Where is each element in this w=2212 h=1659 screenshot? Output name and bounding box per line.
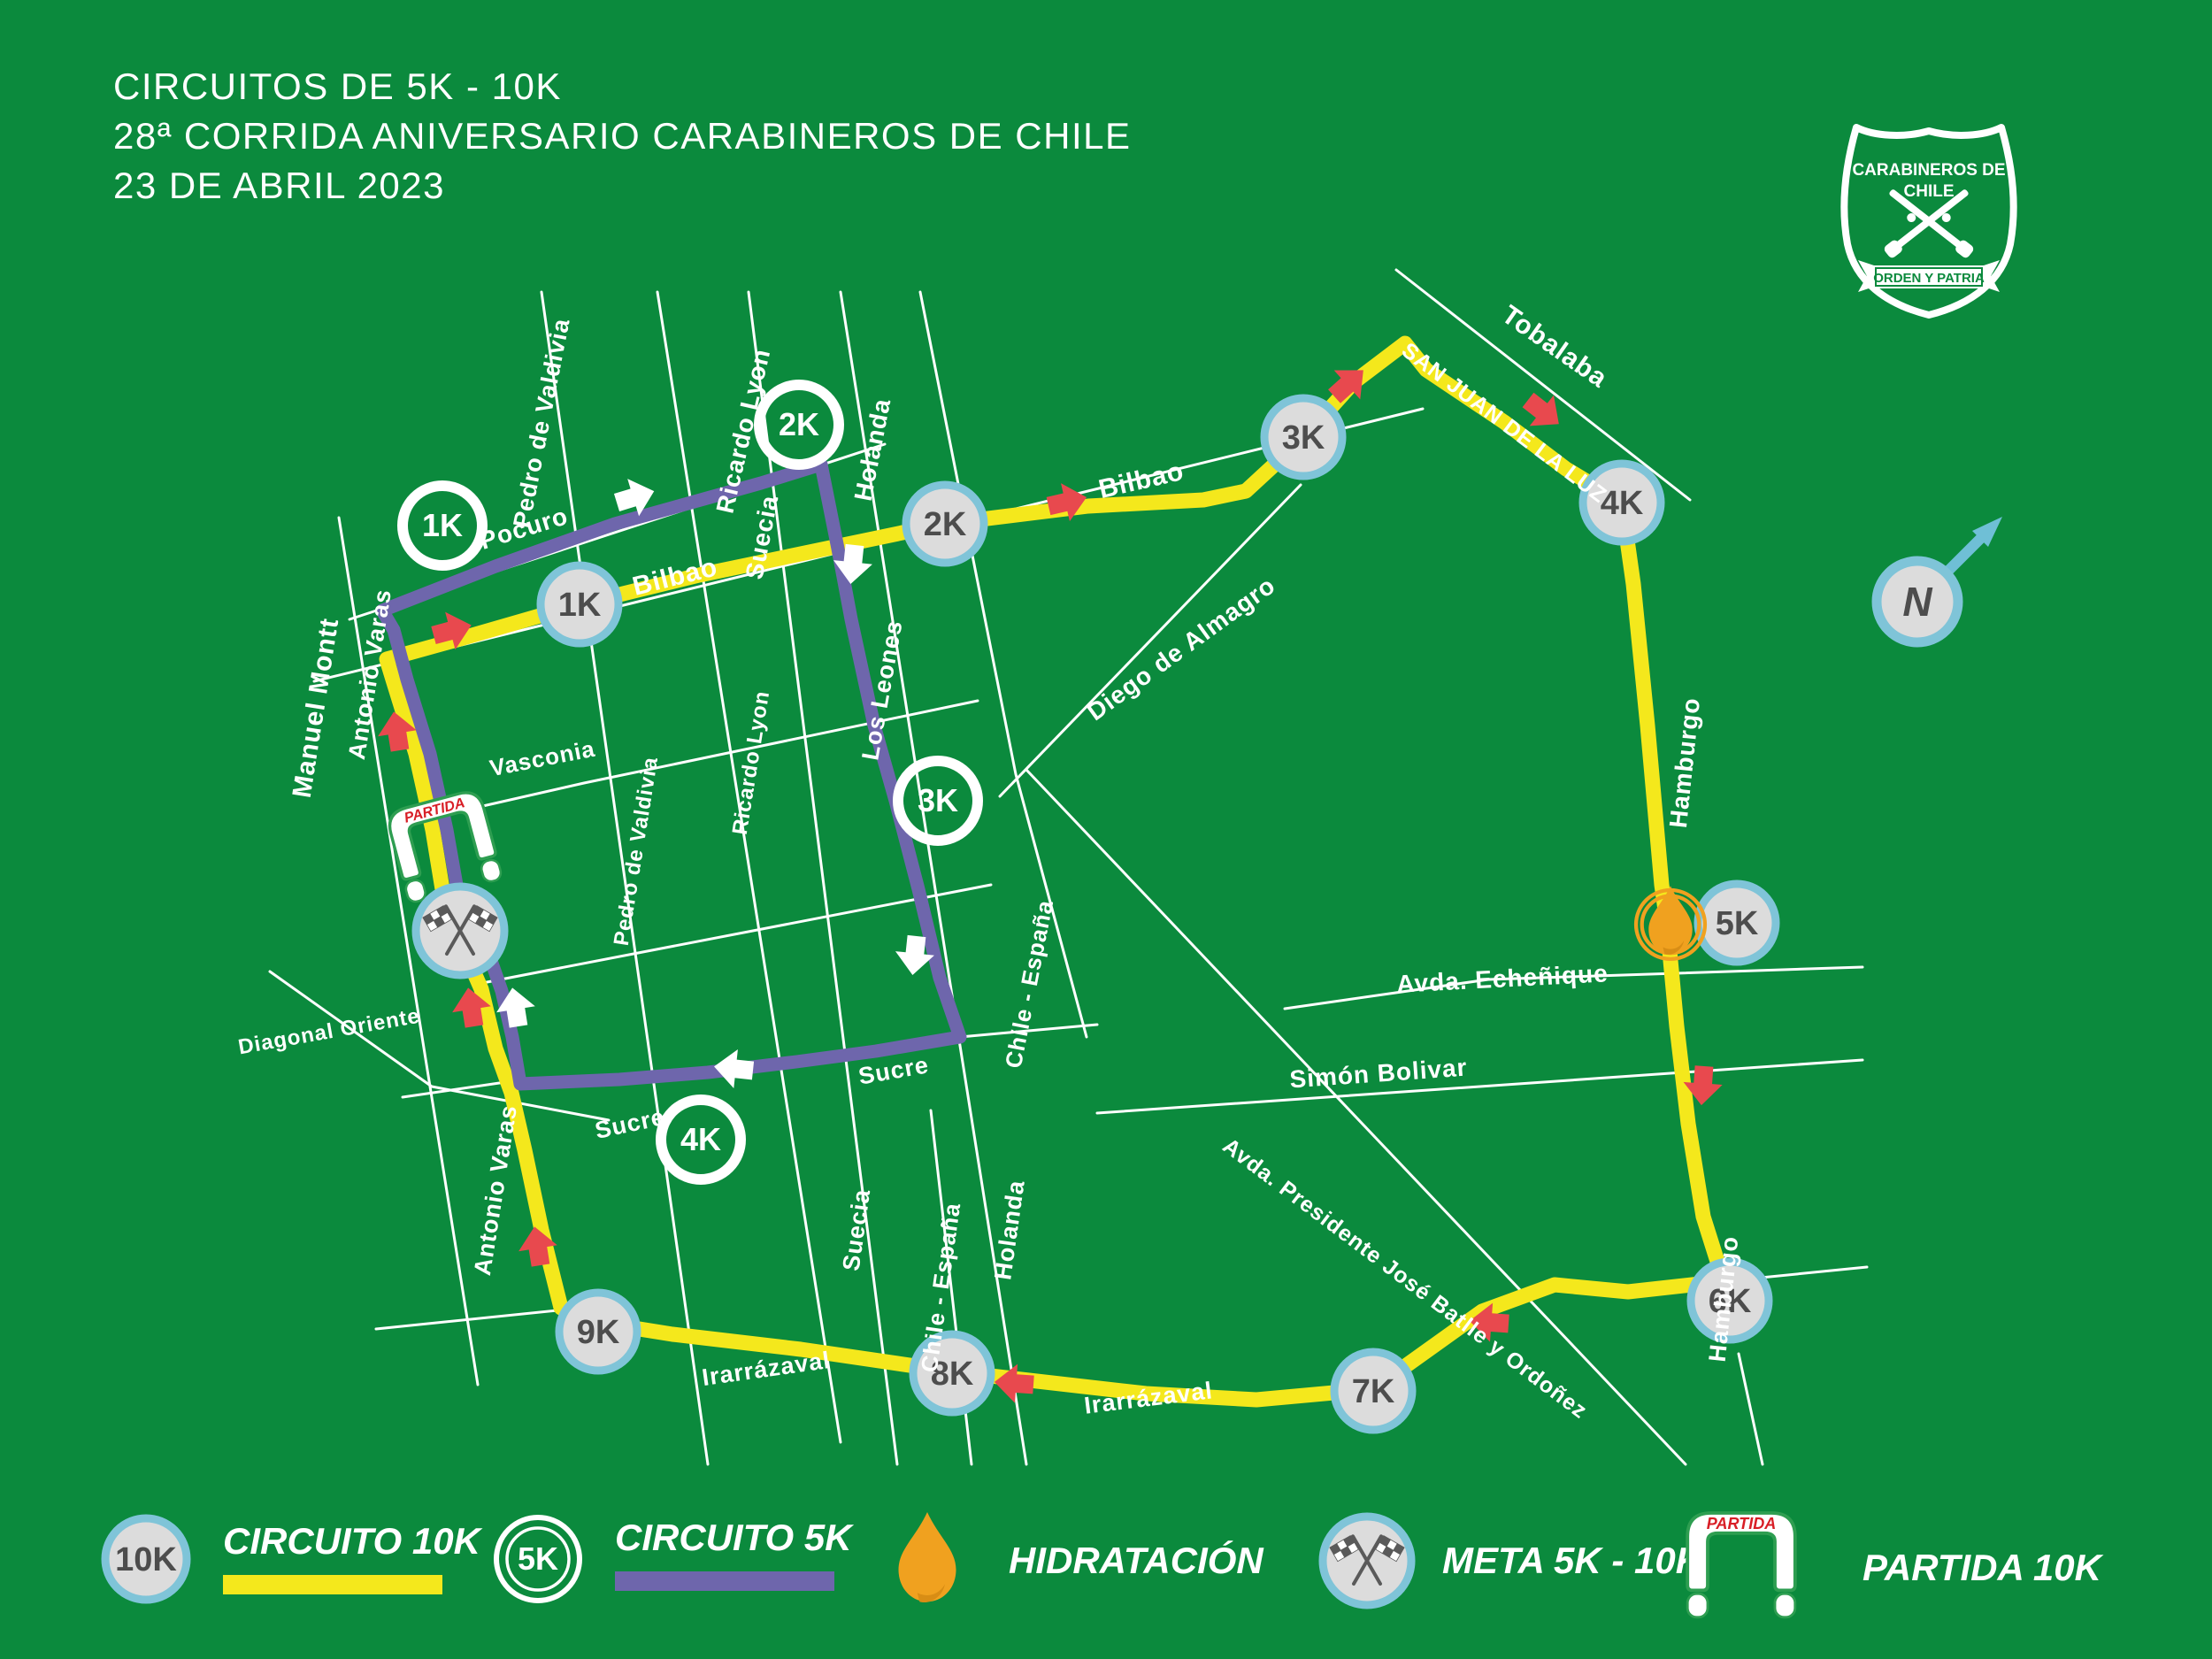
km-marker-label: 1K [558, 587, 602, 624]
km-marker-10k: 3K [1264, 398, 1342, 476]
title-line-2: 28ª CORRIDA ANIVERSARIO CARABINEROS DE C… [113, 115, 1132, 157]
km-marker-label: 7K [1352, 1373, 1395, 1410]
km-marker-10k: 1K [541, 565, 618, 643]
km-marker-10k: 7K [1334, 1352, 1412, 1430]
km-marker-10k: 9K [559, 1293, 637, 1371]
meta-flags-icon [1323, 1517, 1411, 1605]
legend-5k-swatch [615, 1571, 834, 1591]
legend-partida-label: PARTIDA 10K [1863, 1547, 2104, 1588]
logo-motto: ORDEN Y PATRIA [1873, 271, 1985, 286]
legend-10k-swatch [223, 1575, 442, 1594]
arch-right-foot [1775, 1594, 1795, 1617]
legend-marker-5k-label: 5K [518, 1540, 558, 1577]
legend-circuit-10k-label: CIRCUITO 10K [223, 1520, 483, 1562]
race-map-canvas: 1K2K3K4K1K2K3K4K5K6K7K8K9KPARTIDA Manuel… [0, 0, 2212, 1659]
km-marker-label: 9K [577, 1314, 620, 1351]
title-line-3: 23 DE ABRIL 2023 [113, 165, 445, 206]
compass-north-label: N [1902, 579, 1932, 625]
meta-finish-marker [416, 887, 504, 975]
km-marker-label: 5K [1716, 905, 1759, 942]
logo-line-1: CARABINEROS DE [1852, 161, 2005, 180]
km-marker-label: 2K [779, 406, 819, 442]
legend-circuit-5k-label: CIRCUITO 5K [615, 1517, 854, 1558]
legend-meta-label: META 5K - 10K [1442, 1540, 1705, 1581]
title-line-1: CIRCUITOS DE 5K - 10K [113, 65, 562, 107]
legend-marker-10k: 10K [105, 1518, 187, 1600]
km-marker-label: 3K [918, 782, 958, 818]
arch-left-foot [1687, 1594, 1708, 1617]
km-marker-label: 1K [422, 507, 463, 543]
km-marker-10k: 2K [906, 485, 984, 563]
legend-hydration-label: HIDRATACIÓN [1009, 1540, 1264, 1581]
km-marker-label: 2K [924, 506, 967, 543]
logo-line-2: CHILE [1904, 182, 1955, 201]
legend-marker-10k-label: 10K [115, 1541, 177, 1578]
arch-banner-text: PARTIDA [1707, 1515, 1777, 1532]
km-marker-10k: 5K [1698, 884, 1776, 962]
km-marker-label: 4K [680, 1121, 721, 1157]
km-marker-label: 3K [1282, 419, 1325, 457]
carabineros-logo: CARABINEROS DE CHILE ORDEN Y PATRIA [1844, 127, 2013, 315]
